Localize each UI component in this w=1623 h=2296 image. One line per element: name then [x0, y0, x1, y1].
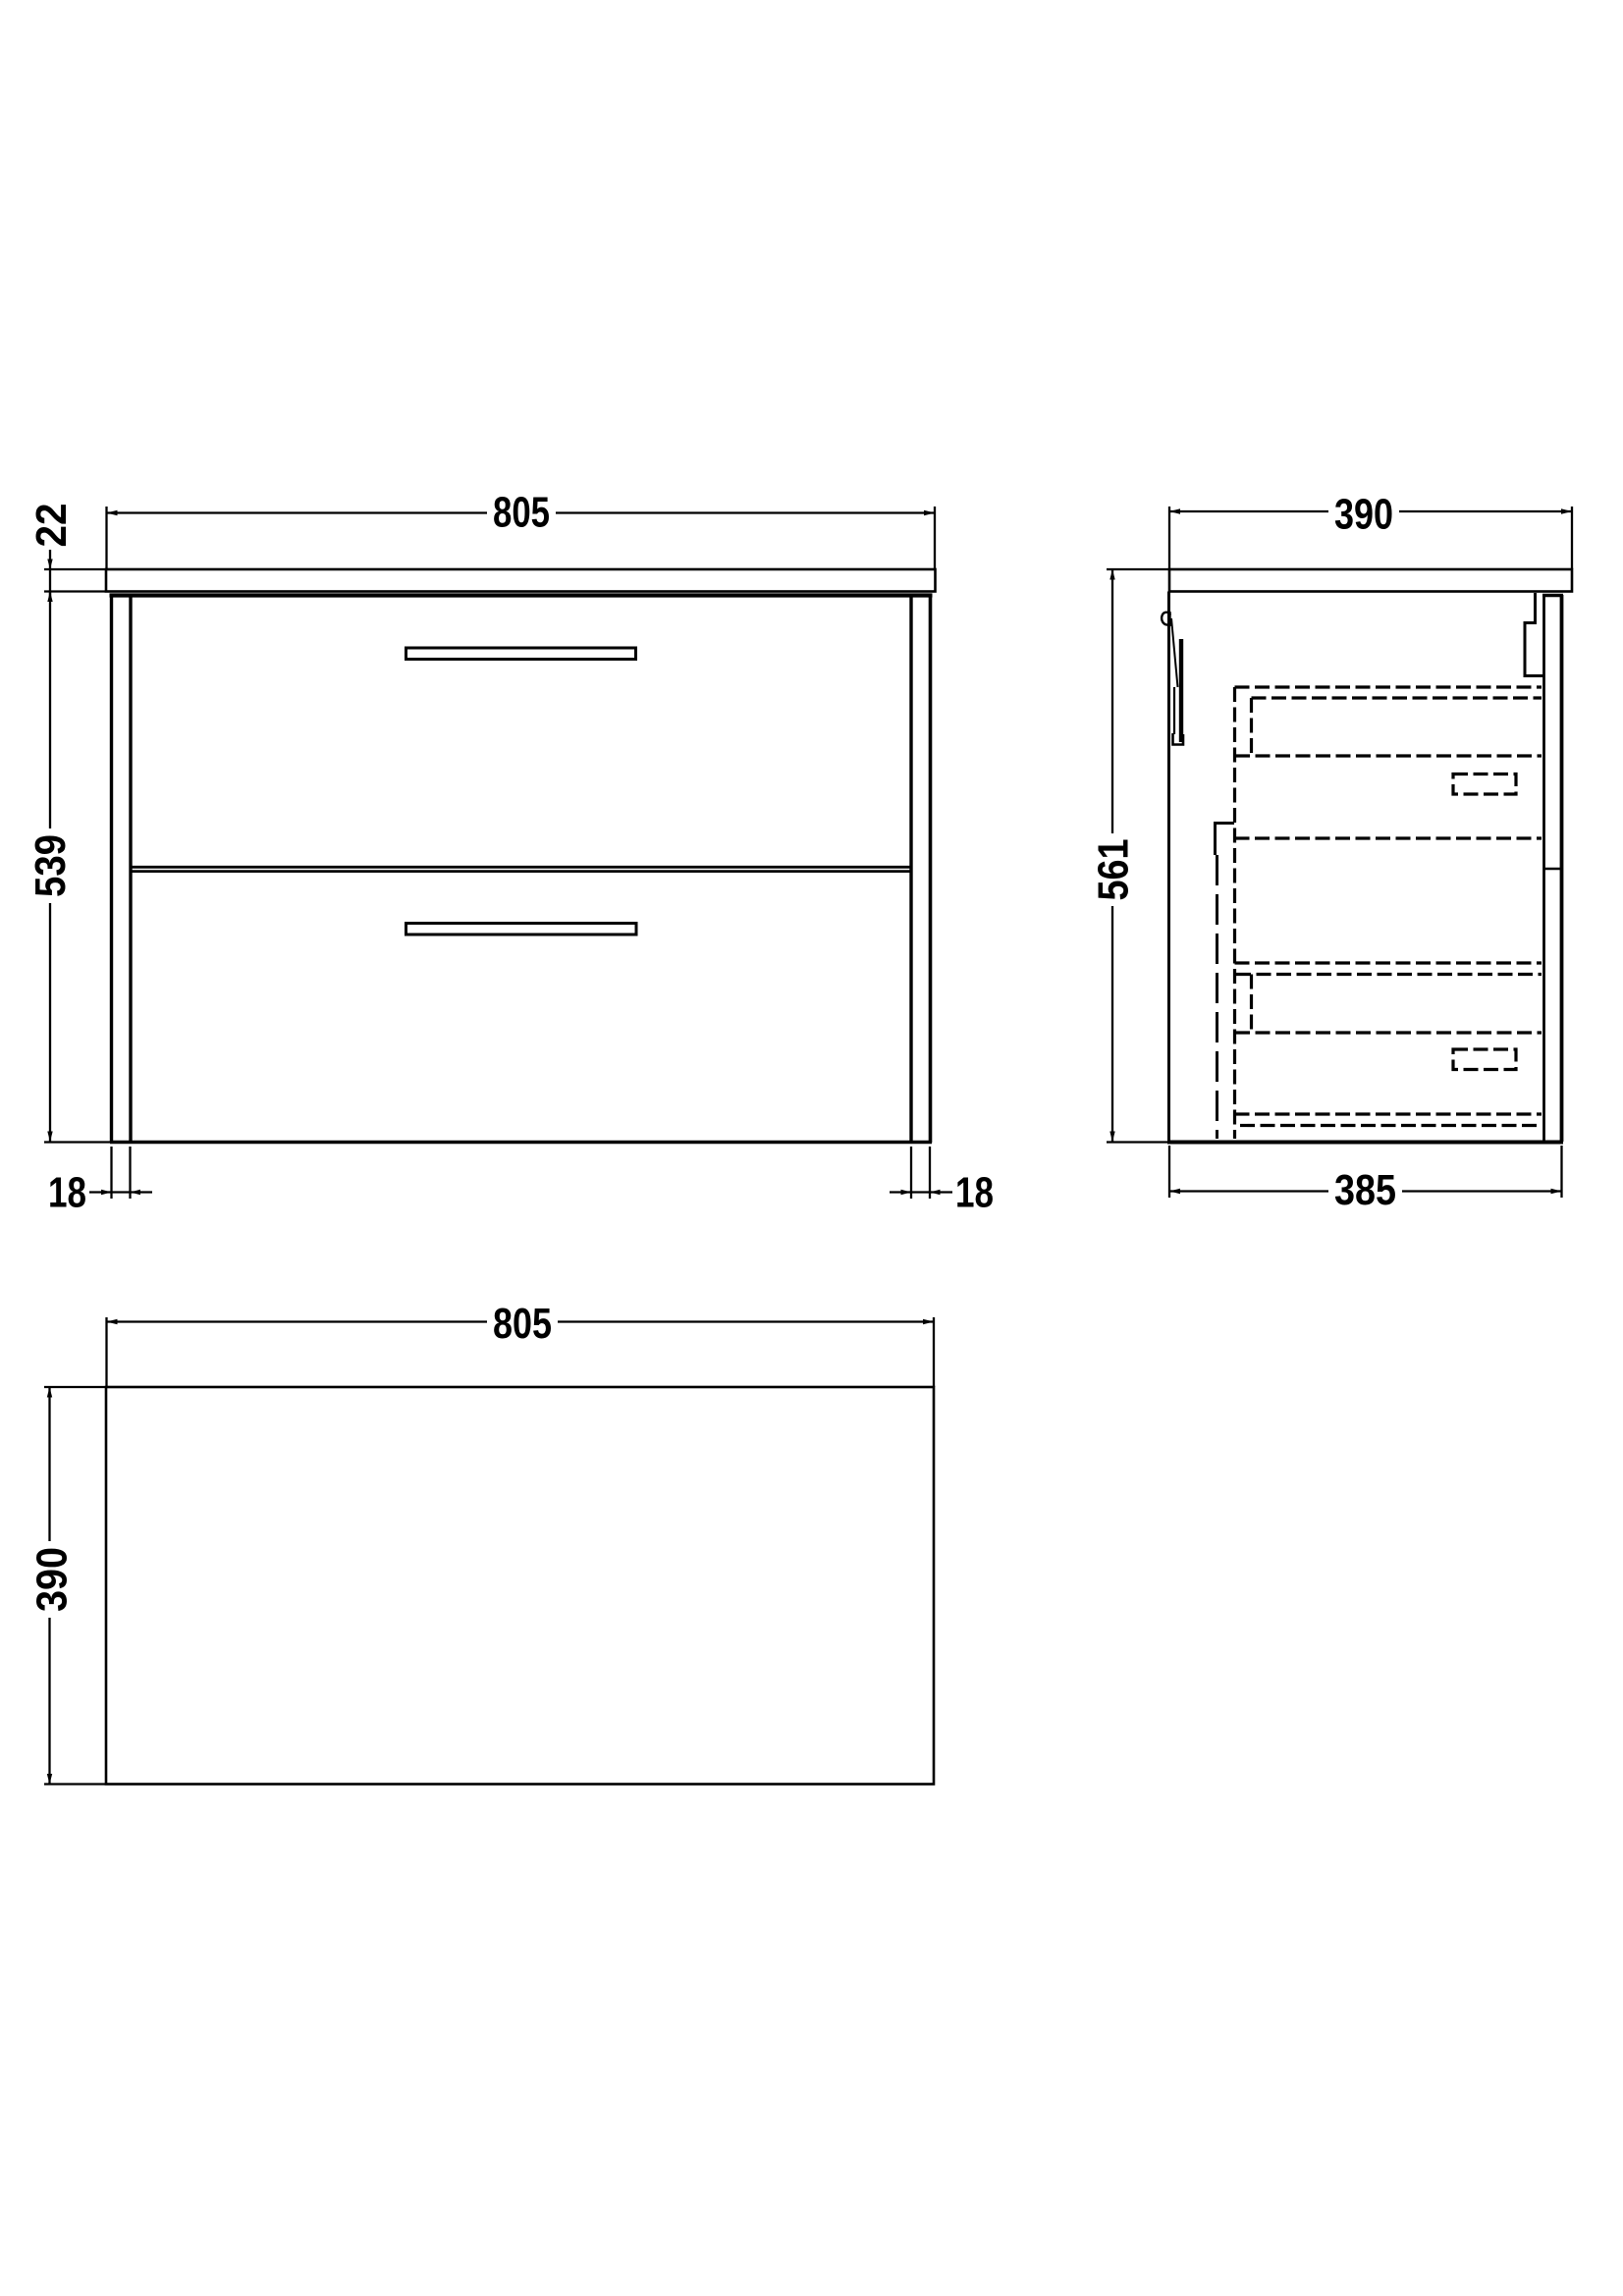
svg-text:561: 561 [1090, 839, 1138, 901]
svg-text:18: 18 [48, 1169, 86, 1217]
svg-text:805: 805 [493, 1300, 552, 1348]
svg-text:390: 390 [28, 1547, 77, 1612]
svg-text:385: 385 [1334, 1166, 1396, 1214]
svg-text:22: 22 [27, 504, 76, 548]
svg-text:539: 539 [27, 834, 75, 897]
svg-text:390: 390 [1334, 491, 1393, 539]
svg-text:18: 18 [955, 1169, 994, 1217]
svg-text:805: 805 [493, 489, 550, 537]
